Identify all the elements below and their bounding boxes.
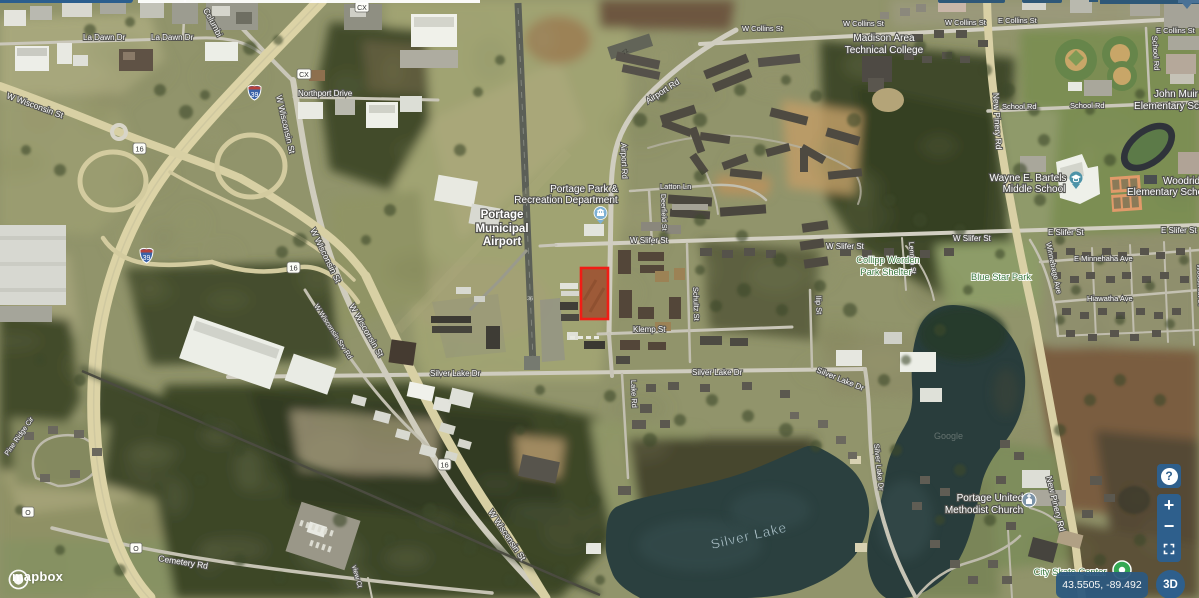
svg-text:Woodridge: Woodridge — [1163, 176, 1199, 187]
svg-text:E Slifer St: E Slifer St — [1048, 228, 1084, 237]
svg-text:Methodist Church: Methodist Church — [945, 505, 1023, 516]
svg-text:O: O — [25, 510, 31, 517]
svg-text:Northport Drive: Northport Drive — [298, 89, 353, 98]
svg-text:39: 39 — [251, 92, 259, 99]
svg-text:Deerfield St: Deerfield St — [659, 194, 667, 231]
svg-text:Park Shelter: Park Shelter — [860, 267, 911, 277]
svg-text:Lake Rd: Lake Rd — [629, 380, 639, 408]
svg-text:Middle School: Middle School — [1003, 184, 1066, 195]
svg-text:Technical College: Technical College — [845, 45, 924, 56]
svg-text:W Collins St: W Collins St — [945, 18, 987, 27]
svg-text:CX: CX — [299, 72, 309, 79]
svg-text:E Slifer St: E Slifer St — [1161, 226, 1197, 235]
svg-text:Latton Ln: Latton Ln — [660, 182, 691, 191]
svg-text:W Slifer St: W Slifer St — [630, 236, 669, 245]
svg-text:llip St: llip St — [814, 296, 824, 316]
svg-text:Blue Star Park: Blue Star Park — [971, 272, 1031, 282]
svg-text:39: 39 — [143, 255, 151, 262]
svg-text:School Rd: School Rd — [1070, 101, 1105, 110]
svg-text:Airport: Airport — [483, 236, 522, 248]
svg-text:W Collins St: W Collins St — [742, 24, 784, 33]
svg-text:O: O — [133, 546, 139, 553]
svg-text:Klemp St: Klemp St — [633, 325, 666, 334]
svg-text:E Minnehaha Ave: E Minnehaha Ave — [1074, 254, 1133, 263]
svg-text:Elementary Scho: Elementary Scho — [1127, 187, 1199, 198]
svg-text:John Muir: John Muir — [1154, 89, 1199, 100]
svg-text:Google: Google — [934, 431, 963, 441]
svg-text:School Rd: School Rd — [1002, 102, 1037, 111]
svg-text:La Dawn Dr: La Dawn Dr — [83, 33, 126, 42]
svg-text:La Dawn Dr: La Dawn Dr — [151, 33, 194, 42]
svg-text:Portage: Portage — [481, 209, 524, 221]
svg-text:16: 16 — [289, 264, 297, 273]
svg-text:W Slifer St: W Slifer St — [826, 242, 865, 251]
svg-text:Madison Area: Madison Area — [853, 33, 915, 44]
svg-text:W Collins St: W Collins St — [843, 19, 885, 28]
svg-text:16: 16 — [440, 461, 448, 470]
svg-text:Wayne E. Bartels: Wayne E. Bartels — [990, 173, 1067, 184]
svg-text:Hiawatha Ave: Hiawatha Ave — [1087, 294, 1133, 303]
svg-text:Airport Rd: Airport Rd — [619, 143, 629, 179]
svg-text:16: 16 — [135, 145, 143, 154]
svg-text:Elementary School: Elementary School — [1134, 101, 1199, 112]
svg-text:W Slifer St: W Slifer St — [953, 234, 992, 243]
svg-text:Portage Park &: Portage Park & — [550, 184, 618, 195]
svg-text:Schultz St: Schultz St — [691, 287, 701, 322]
svg-text:36: 36 — [527, 296, 533, 302]
svg-text:Recreation Department: Recreation Department — [514, 195, 618, 206]
svg-text:City Skate Center: City Skate Center — [1034, 567, 1107, 577]
svg-text:E Collins St: E Collins St — [998, 16, 1038, 25]
svg-text:E Collins St: E Collins St — [1156, 26, 1196, 35]
svg-text:Silver Lake Dr: Silver Lake Dr — [430, 369, 481, 378]
svg-text:CX: CX — [357, 5, 367, 12]
svg-text:Municipal: Municipal — [475, 223, 528, 235]
svg-text:Collipp Worden: Collipp Worden — [856, 255, 919, 265]
svg-text:Silver Lake Dr: Silver Lake Dr — [692, 368, 743, 377]
svg-text:Portage United: Portage United — [957, 493, 1024, 504]
